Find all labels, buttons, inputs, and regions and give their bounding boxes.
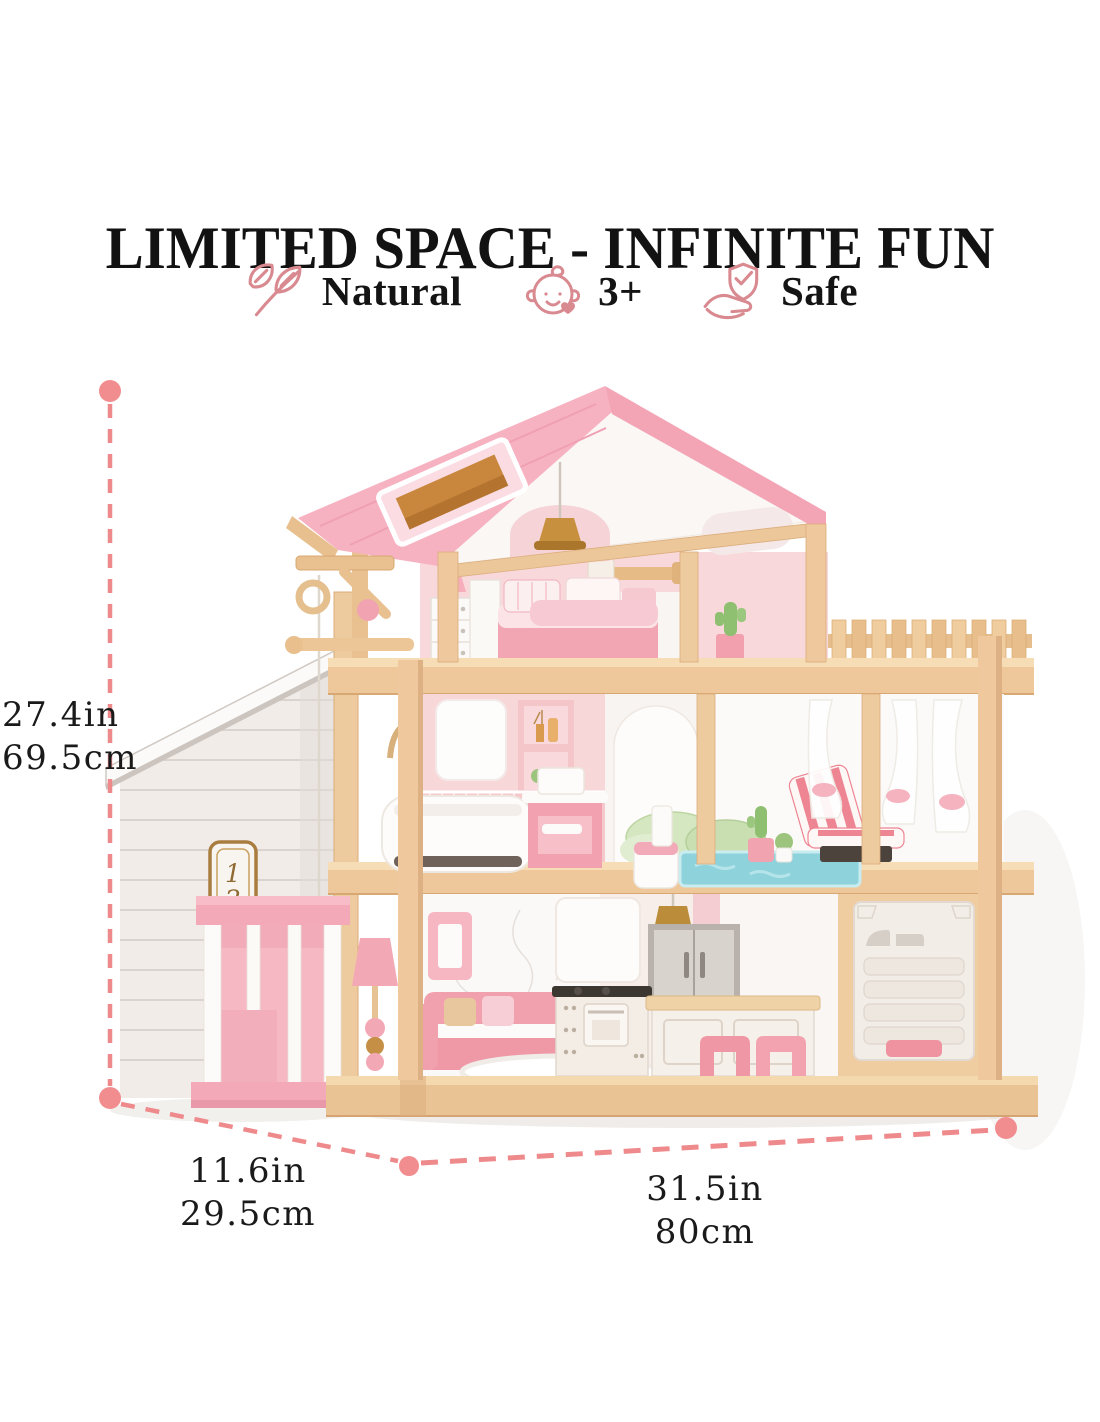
height-cm: 69.5cm (2, 737, 138, 780)
middle-divider-post (697, 694, 715, 864)
product-image: LIMITED SPACE - INFINITE FUN Natural (0, 0, 1100, 1422)
balcony-post (862, 694, 880, 864)
kitchen-window (556, 898, 640, 982)
curtain-bow (939, 794, 965, 810)
depth-in: 11.6in (148, 1150, 348, 1193)
house-base (326, 1076, 1038, 1116)
attic-floor-board (328, 658, 1034, 694)
depth-cm: 29.5cm (148, 1193, 348, 1236)
bed-blanket (530, 600, 658, 626)
attic-right-post (806, 524, 826, 662)
dimension-dot (99, 1087, 121, 1109)
floor-lamp (352, 938, 398, 1071)
width-in: 31.5in (595, 1168, 815, 1211)
dimension-dot (399, 1156, 419, 1176)
kitchen-cabinets (552, 986, 652, 1076)
width-dimension-label: 31.5in 80cm (595, 1168, 815, 1253)
curtain-bow (886, 789, 910, 803)
width-cm: 80cm (595, 1211, 815, 1254)
attic-floor-room (352, 552, 828, 662)
bathroom-window (436, 700, 506, 780)
height-dimension-label: 27.4in 69.5cm (2, 694, 138, 779)
depth-dimension-label: 11.6in 29.5cm (148, 1150, 348, 1235)
dimension-dot (99, 380, 121, 402)
height-in: 27.4in (2, 694, 138, 737)
width-dimension-line (421, 1130, 994, 1163)
garage-handle (886, 1040, 942, 1057)
garage-window-right (896, 934, 924, 946)
sofa-pillow-pink (482, 996, 514, 1026)
garage (838, 894, 988, 1076)
sign-digit: 1 (225, 859, 241, 888)
attic-left-post (438, 552, 458, 662)
sofa-pillow-tan (444, 998, 476, 1026)
curtain-bow (812, 783, 836, 797)
roof (286, 386, 826, 579)
dimension-dot (995, 1117, 1017, 1139)
attic-divider-post (680, 552, 698, 662)
dollhouse-scene: 1 2 0 4 (0, 0, 1100, 1422)
fridge-cabinet (648, 924, 740, 998)
